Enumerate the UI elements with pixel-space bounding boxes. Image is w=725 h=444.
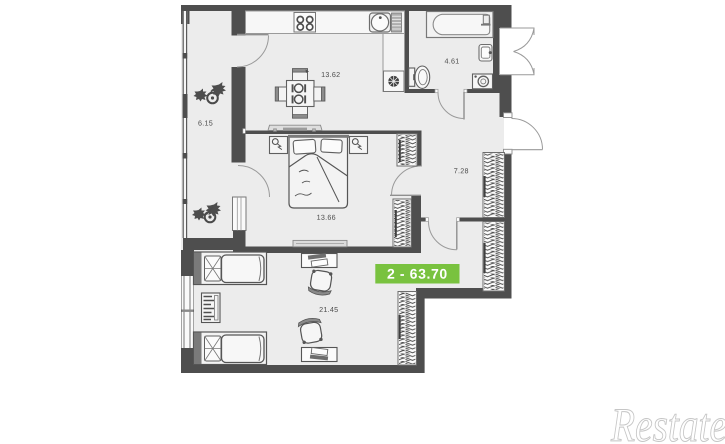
svg-text:7.28: 7.28 [454,166,469,175]
svg-text:2 - 63.70: 2 - 63.70 [387,266,448,282]
svg-text:13.66: 13.66 [317,213,336,222]
svg-text:4.61: 4.61 [444,56,459,65]
svg-text:Restate: Restate [610,399,725,444]
svg-text:21.45: 21.45 [319,305,338,314]
svg-text:6.15: 6.15 [198,118,213,127]
svg-text:13.62: 13.62 [321,70,340,79]
